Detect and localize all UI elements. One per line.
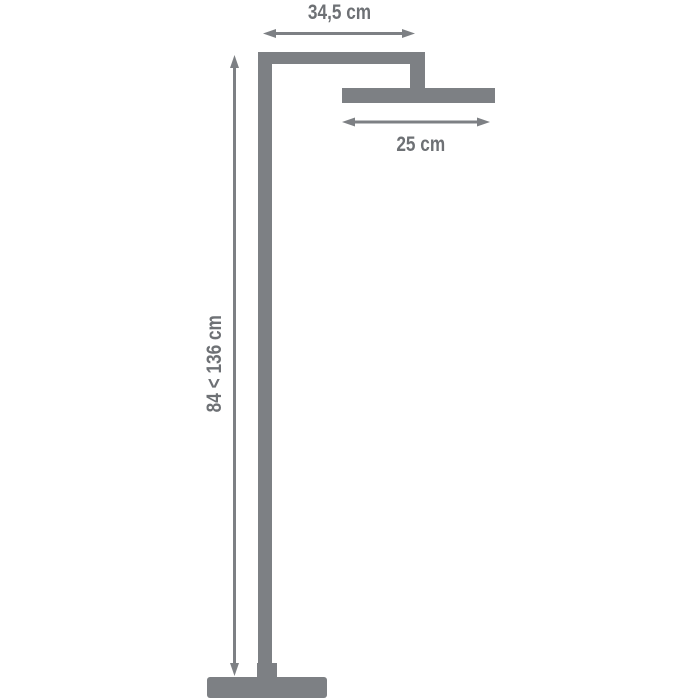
head-width-arrow-right-head <box>477 118 490 127</box>
shower-column-drawing <box>0 0 700 700</box>
top-width-arrow-right-head <box>402 29 415 38</box>
height-dimension-arrow <box>230 55 239 676</box>
height-arrow-bottom-head <box>230 663 239 676</box>
base-neck <box>257 663 277 678</box>
top-width-label: 34,5 cm <box>280 1 400 25</box>
head-width-label: 25 cm <box>361 133 481 157</box>
top-width-arrow-left-head <box>263 29 276 38</box>
head-width-dimension-arrow <box>342 118 490 127</box>
top-width-value: 34,5 cm <box>308 1 371 25</box>
head-width-value: 25 cm <box>397 133 446 157</box>
column-pole <box>258 52 272 663</box>
head-width-arrow-left-head <box>342 118 355 127</box>
top-arm <box>258 52 425 64</box>
height-range-label: 84 < 136 cm <box>203 299 227 429</box>
top-width-dimension-arrow <box>263 29 415 38</box>
shower-head <box>342 88 495 103</box>
base-plate <box>207 677 327 698</box>
height-range-value: 84 < 136 cm <box>203 315 227 412</box>
product-dimension-diagram: 34,5 cm 25 cm 84 < 136 cm <box>0 0 700 700</box>
height-arrow-top-head <box>230 55 239 68</box>
